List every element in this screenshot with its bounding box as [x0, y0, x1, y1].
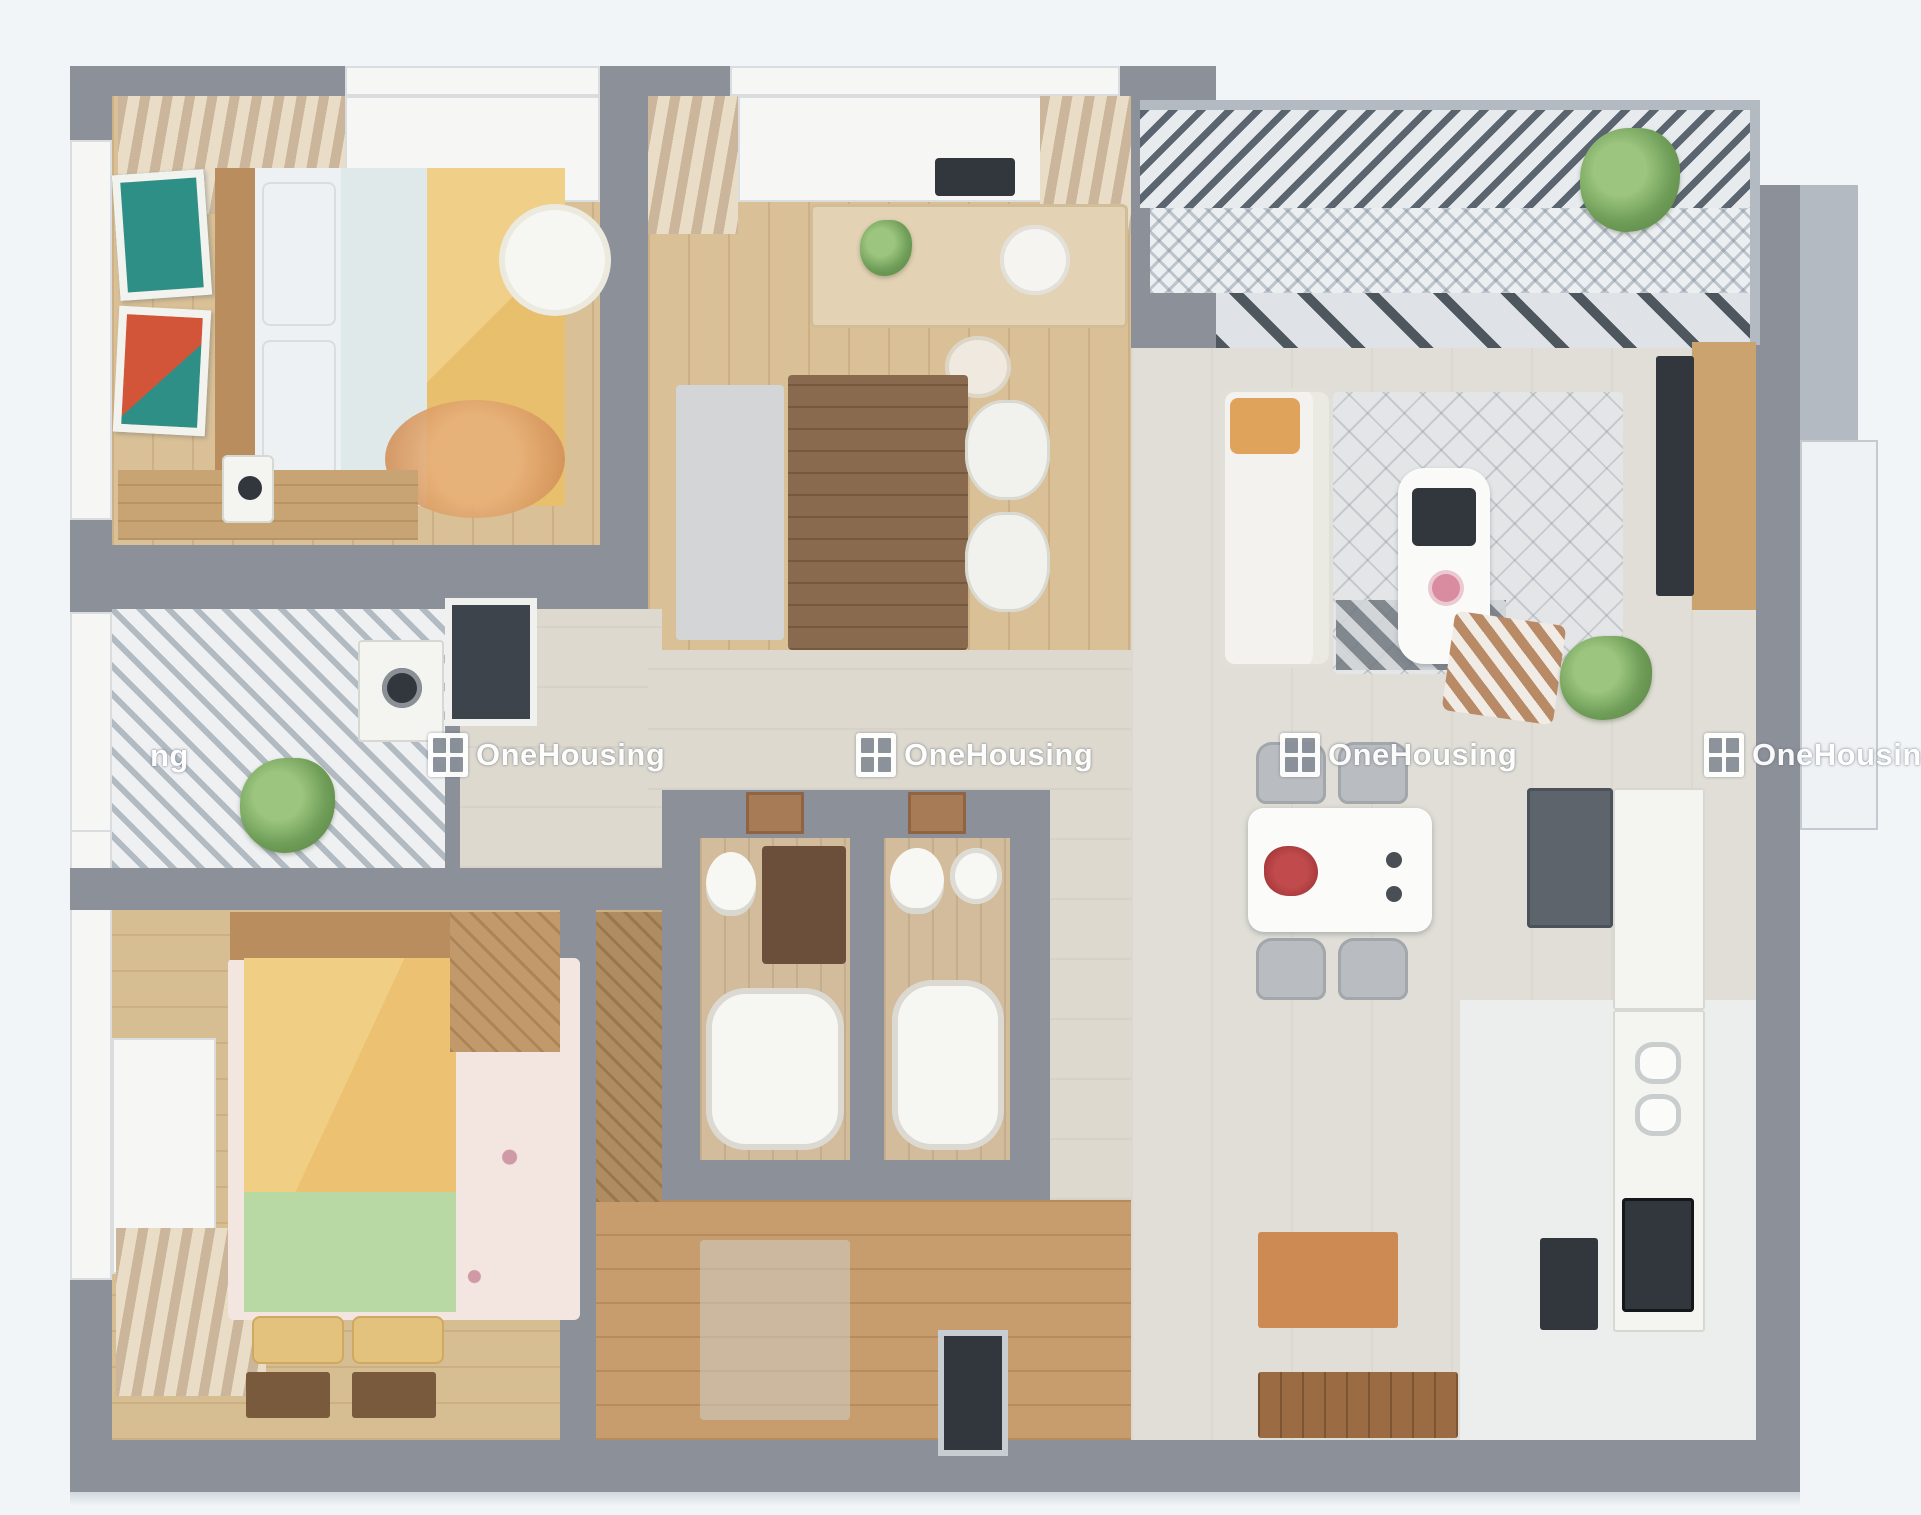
dining-flowers — [1264, 846, 1318, 896]
nightstand-lamp — [238, 476, 262, 500]
watermark: OneHousing — [428, 733, 665, 777]
watermark-fragment: ng — [150, 738, 189, 774]
window-logo-icon — [856, 733, 896, 777]
sink-basin-2 — [1635, 1094, 1681, 1136]
terrace-slats — [1216, 293, 1750, 348]
entry-rug-brown — [1258, 1372, 1458, 1438]
window-logo-icon — [428, 733, 468, 777]
hall-floor-strip — [1050, 790, 1131, 1200]
watermark-label: OneHousing — [1328, 737, 1517, 773]
bathroom1-door — [746, 792, 804, 834]
wall-bath-divider — [850, 838, 884, 1160]
watermark-label: OneHousing — [904, 737, 1093, 773]
kitchen-tall-cabinet — [1613, 788, 1705, 1010]
art-frame-red — [113, 306, 211, 437]
study-curtain-left — [648, 96, 738, 234]
tv-screen — [1656, 356, 1694, 596]
watermark-label: OneHousing — [1752, 737, 1921, 773]
dining-plate-2 — [1386, 886, 1402, 902]
bed1-pillow-top — [262, 182, 336, 326]
window-left-bedroom1 — [70, 140, 112, 520]
desk-chair-1 — [965, 400, 1050, 500]
sofa-cushion-orange — [1230, 398, 1300, 454]
wall-step-block — [1800, 185, 1858, 440]
bed2-cushion-2 — [352, 1316, 444, 1364]
plan-drop-shadow — [70, 1492, 1800, 1506]
fridge — [1527, 788, 1613, 928]
entry-floor — [596, 1200, 1131, 1440]
dining-plate-1 — [1386, 852, 1402, 868]
vanity-table — [810, 204, 1128, 328]
bathroom1-vanity — [762, 846, 846, 964]
watermark: OneHousing — [1280, 733, 1517, 777]
balcony-window-panel — [445, 598, 537, 726]
bed2-cushion-1 — [252, 1316, 344, 1364]
corner-wardrobe — [450, 912, 560, 1052]
watermark-label: OneHousing — [476, 737, 665, 773]
dining-chair-4 — [1338, 938, 1408, 1000]
watermark-label: ng — [150, 738, 189, 774]
window-bench — [935, 158, 1015, 196]
art-frame-teal — [112, 169, 213, 301]
bathroom1-bathtub — [706, 988, 844, 1150]
desk-chair-2 — [965, 512, 1050, 612]
bathroom1-toilet — [706, 852, 756, 916]
wall-bath-left — [662, 790, 700, 1200]
watermark: OneHousing — [856, 733, 1093, 777]
bathroom2-sink — [950, 848, 1002, 904]
wall-bath-right — [1010, 790, 1050, 1200]
tv-console — [1692, 342, 1756, 610]
bed2-blanket-yellow — [244, 958, 456, 1192]
balcony-rail-top — [1140, 100, 1760, 110]
bed2-blanket-green — [244, 1192, 456, 1312]
floor-plan-canvas: ngOneHousingOneHousingOneHousingOneHousi… — [0, 0, 1921, 1515]
bedside-mat-1 — [246, 1372, 330, 1418]
balcony-deck — [1150, 208, 1750, 293]
outer-wall-right — [1756, 185, 1800, 1440]
fluffy-round-rug — [505, 210, 605, 310]
entry-mat — [700, 1240, 850, 1420]
desk — [788, 375, 968, 650]
window-top-study — [730, 66, 1120, 96]
wall-bedroom2-top — [70, 868, 700, 910]
wall-bath-bottom — [662, 1160, 1050, 1200]
study-rug — [676, 385, 784, 640]
window-top-bedroom1 — [345, 66, 600, 96]
bedside-mat-2 — [352, 1372, 436, 1418]
window-logo-icon — [1280, 733, 1320, 777]
bathroom2-bathtub — [892, 980, 1004, 1150]
kitchen-mat-orange — [1258, 1232, 1398, 1328]
sink-basin-1 — [1635, 1042, 1681, 1084]
balcony-rail-right — [1750, 100, 1760, 345]
wall-bedroom1-right — [600, 66, 648, 545]
coffee-table-flowers — [1432, 574, 1460, 602]
entry-door — [938, 1330, 1008, 1456]
vanity-vase — [1000, 225, 1070, 295]
kitchen-floor — [1460, 1000, 1756, 1440]
watermark: OneHousing — [1704, 733, 1921, 777]
cooktop — [1622, 1198, 1694, 1312]
bathroom2-toilet — [890, 848, 944, 914]
floor-cushion-chevron — [1442, 611, 1567, 726]
dining-chair-3 — [1256, 938, 1326, 1000]
closet-wardrobe — [596, 912, 662, 1202]
outer-wall-bottom — [70, 1440, 1800, 1492]
oven-unit — [1540, 1238, 1598, 1330]
window-logo-icon — [1704, 733, 1744, 777]
coffee-table-tray — [1412, 488, 1476, 546]
wall-bedroom1-bottom — [70, 545, 650, 609]
washing-machine-door — [382, 668, 422, 708]
bathroom2-door — [908, 792, 966, 834]
